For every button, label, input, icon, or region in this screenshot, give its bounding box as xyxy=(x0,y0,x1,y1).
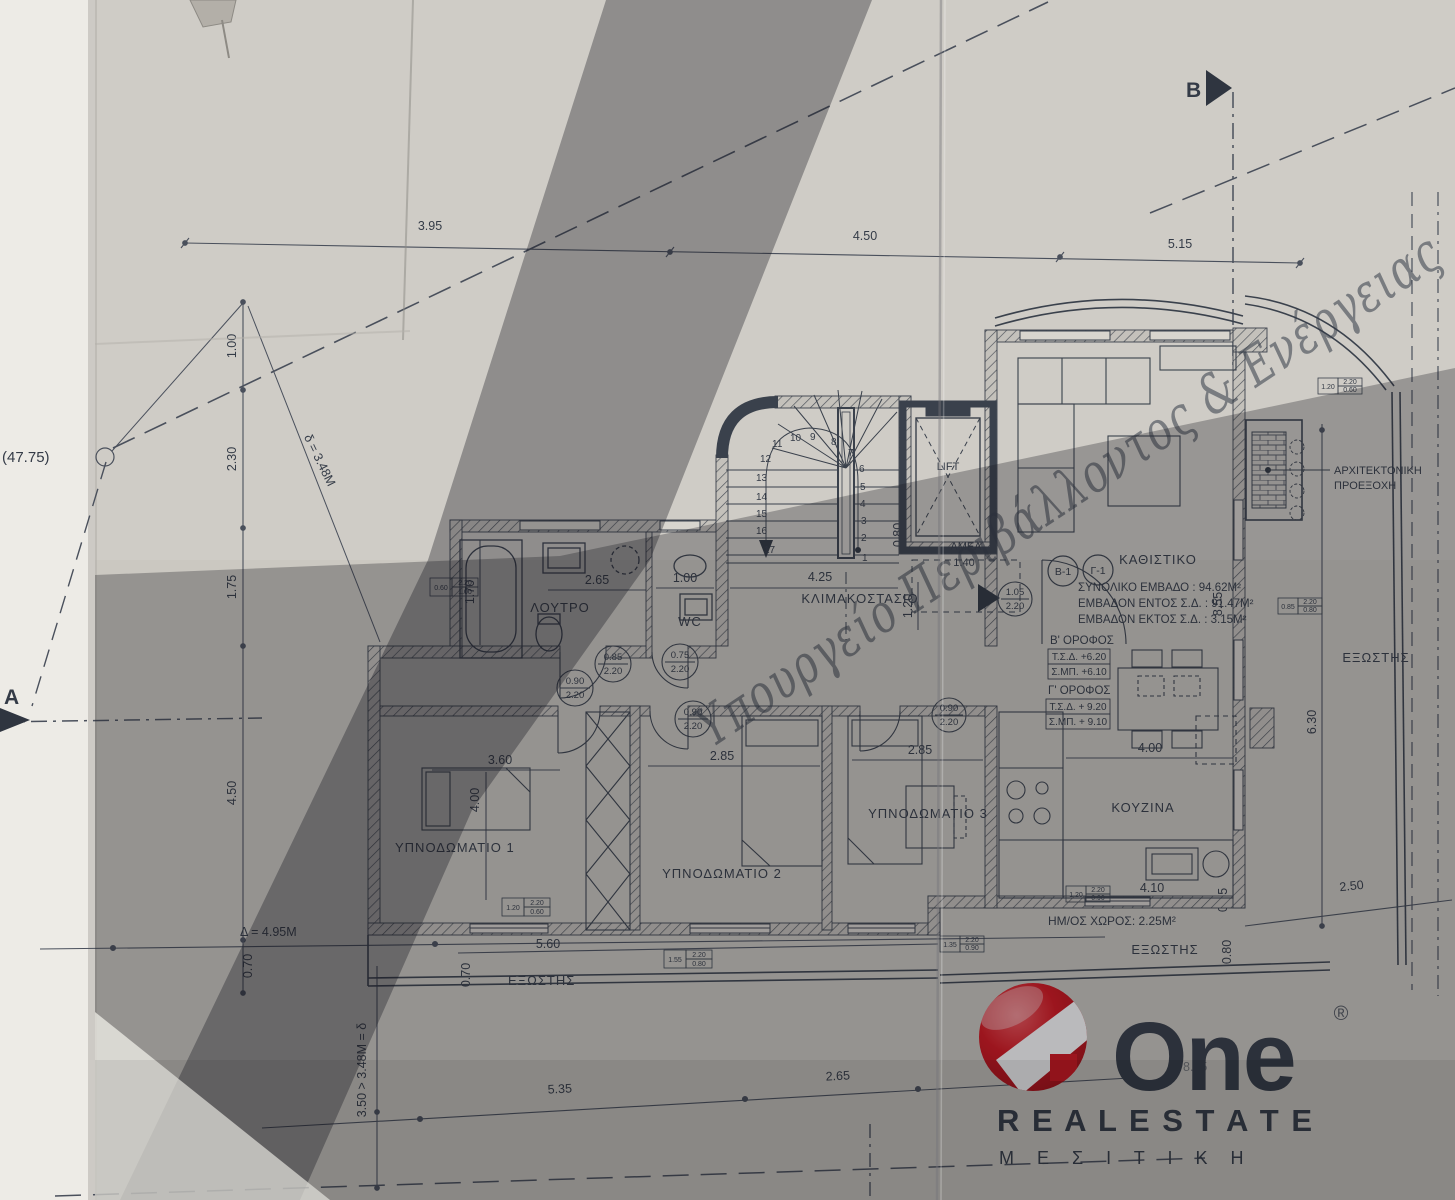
paper-left-fold-strip xyxy=(0,0,95,1200)
stair-step-12: 12 xyxy=(760,454,772,465)
stair-step-9: 9 xyxy=(810,432,816,443)
dim-top-2: 4.50 xyxy=(853,229,877,243)
dim-top-1: 3.95 xyxy=(418,219,442,233)
stair-step-13: 13 xyxy=(756,473,768,484)
photo-of-floor-plan: B A (47.75) xyxy=(0,0,1455,1200)
elevation-value: (47.75) xyxy=(2,449,50,466)
section-marker-b: B xyxy=(1186,79,1201,102)
stair-step-8: 8 xyxy=(831,437,837,448)
stair-step-5: 5 xyxy=(860,482,866,493)
window-tag-topright-h: 2.20 xyxy=(1343,379,1357,386)
stair-step-6: 6 xyxy=(859,464,865,475)
bottom-darkening xyxy=(95,1060,1455,1200)
dim-left-2: 2.30 xyxy=(225,447,239,471)
stair-step-10: 10 xyxy=(790,433,802,444)
dim-top-3: 5.15 xyxy=(1168,237,1192,251)
floor-plan-photo-svg: B A (47.75) xyxy=(0,0,1455,1200)
window-tag-topright-w: 1.20 xyxy=(1321,384,1335,391)
section-marker-a: A xyxy=(4,686,19,709)
stair-step-11: 11 xyxy=(772,439,783,450)
stair-step-7: 7 xyxy=(848,448,854,459)
stair-step-14: 14 xyxy=(756,492,768,503)
